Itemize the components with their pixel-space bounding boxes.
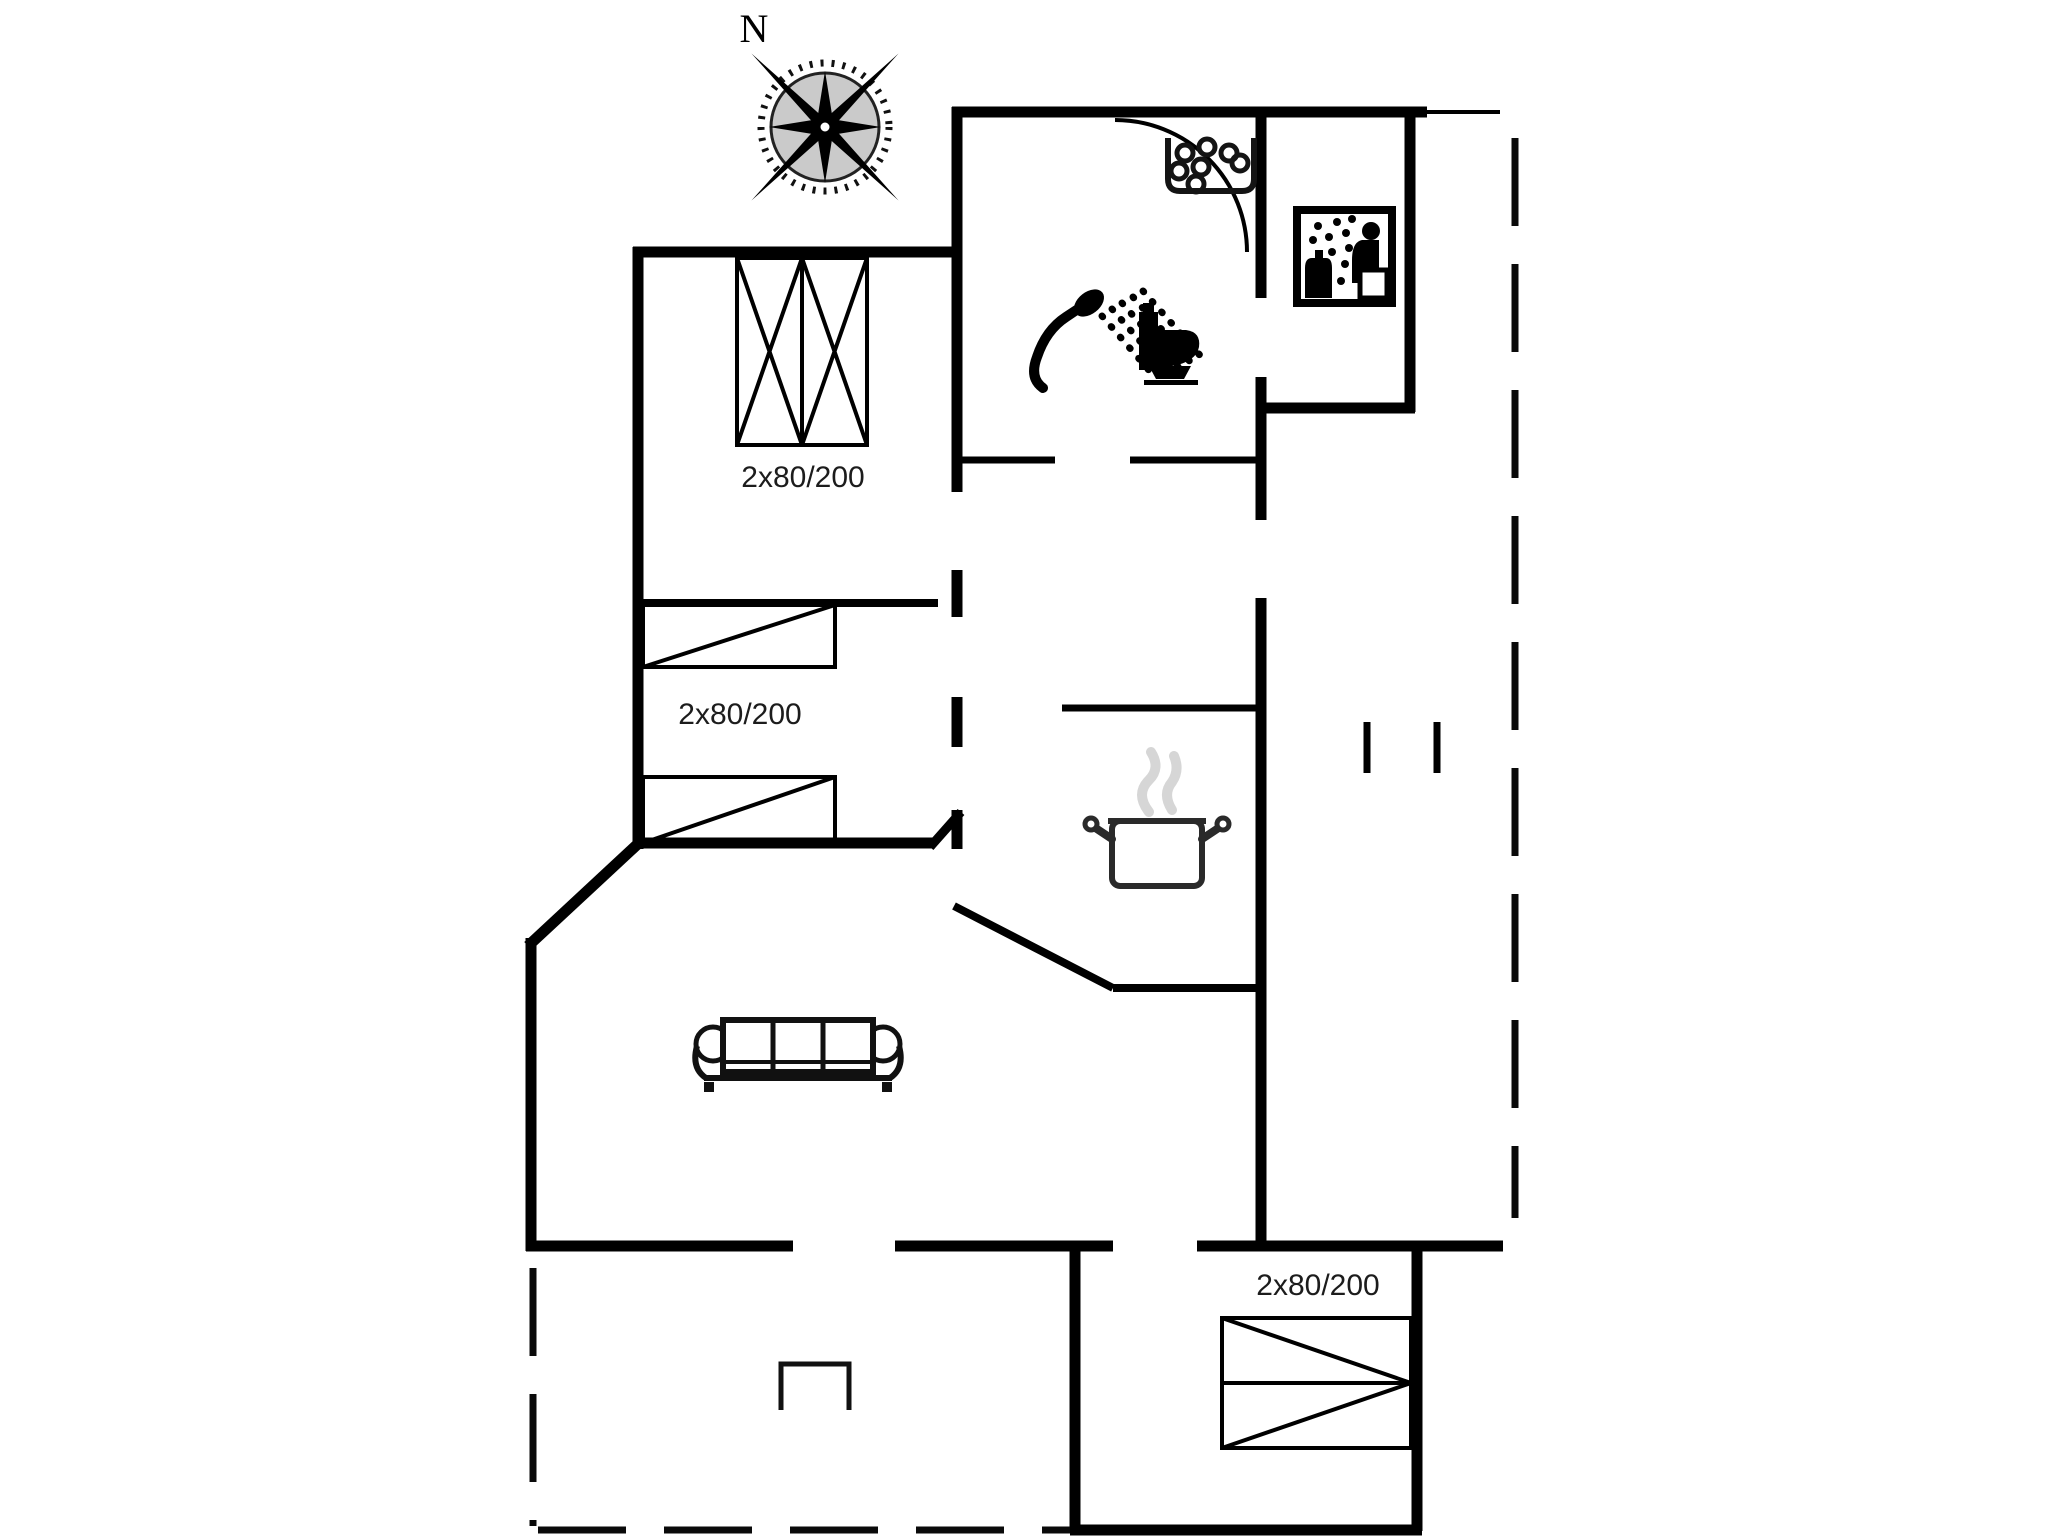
compass-rose-icon: N: [740, 6, 903, 205]
bed-double-top: [737, 258, 867, 445]
terrace-door-posts: [1367, 722, 1437, 773]
bed-single-upper: [643, 605, 835, 667]
bed-double-bottom-right: [1222, 1318, 1411, 1448]
bed-single-lower: [643, 777, 835, 843]
sofa-icon: [695, 1020, 900, 1092]
bed-size-label-middle: 2x80/200: [678, 698, 801, 731]
entrance-door-arc: [1115, 120, 1247, 252]
cooking-pot-icon: [1085, 752, 1229, 886]
bed-size-label-top: 2x80/200: [741, 461, 864, 494]
terrace-dashed-outline: [533, 138, 1515, 1530]
floor-plan: N: [0, 0, 2048, 1536]
whirlpool-icon: [1168, 138, 1254, 192]
north-label: N: [740, 6, 769, 51]
bed-size-label-bottom-right: 2x80/200: [1256, 1269, 1379, 1302]
sauna-icon: [1297, 210, 1392, 303]
grill-icon: [781, 1364, 849, 1410]
steam-icon: [1142, 752, 1177, 812]
